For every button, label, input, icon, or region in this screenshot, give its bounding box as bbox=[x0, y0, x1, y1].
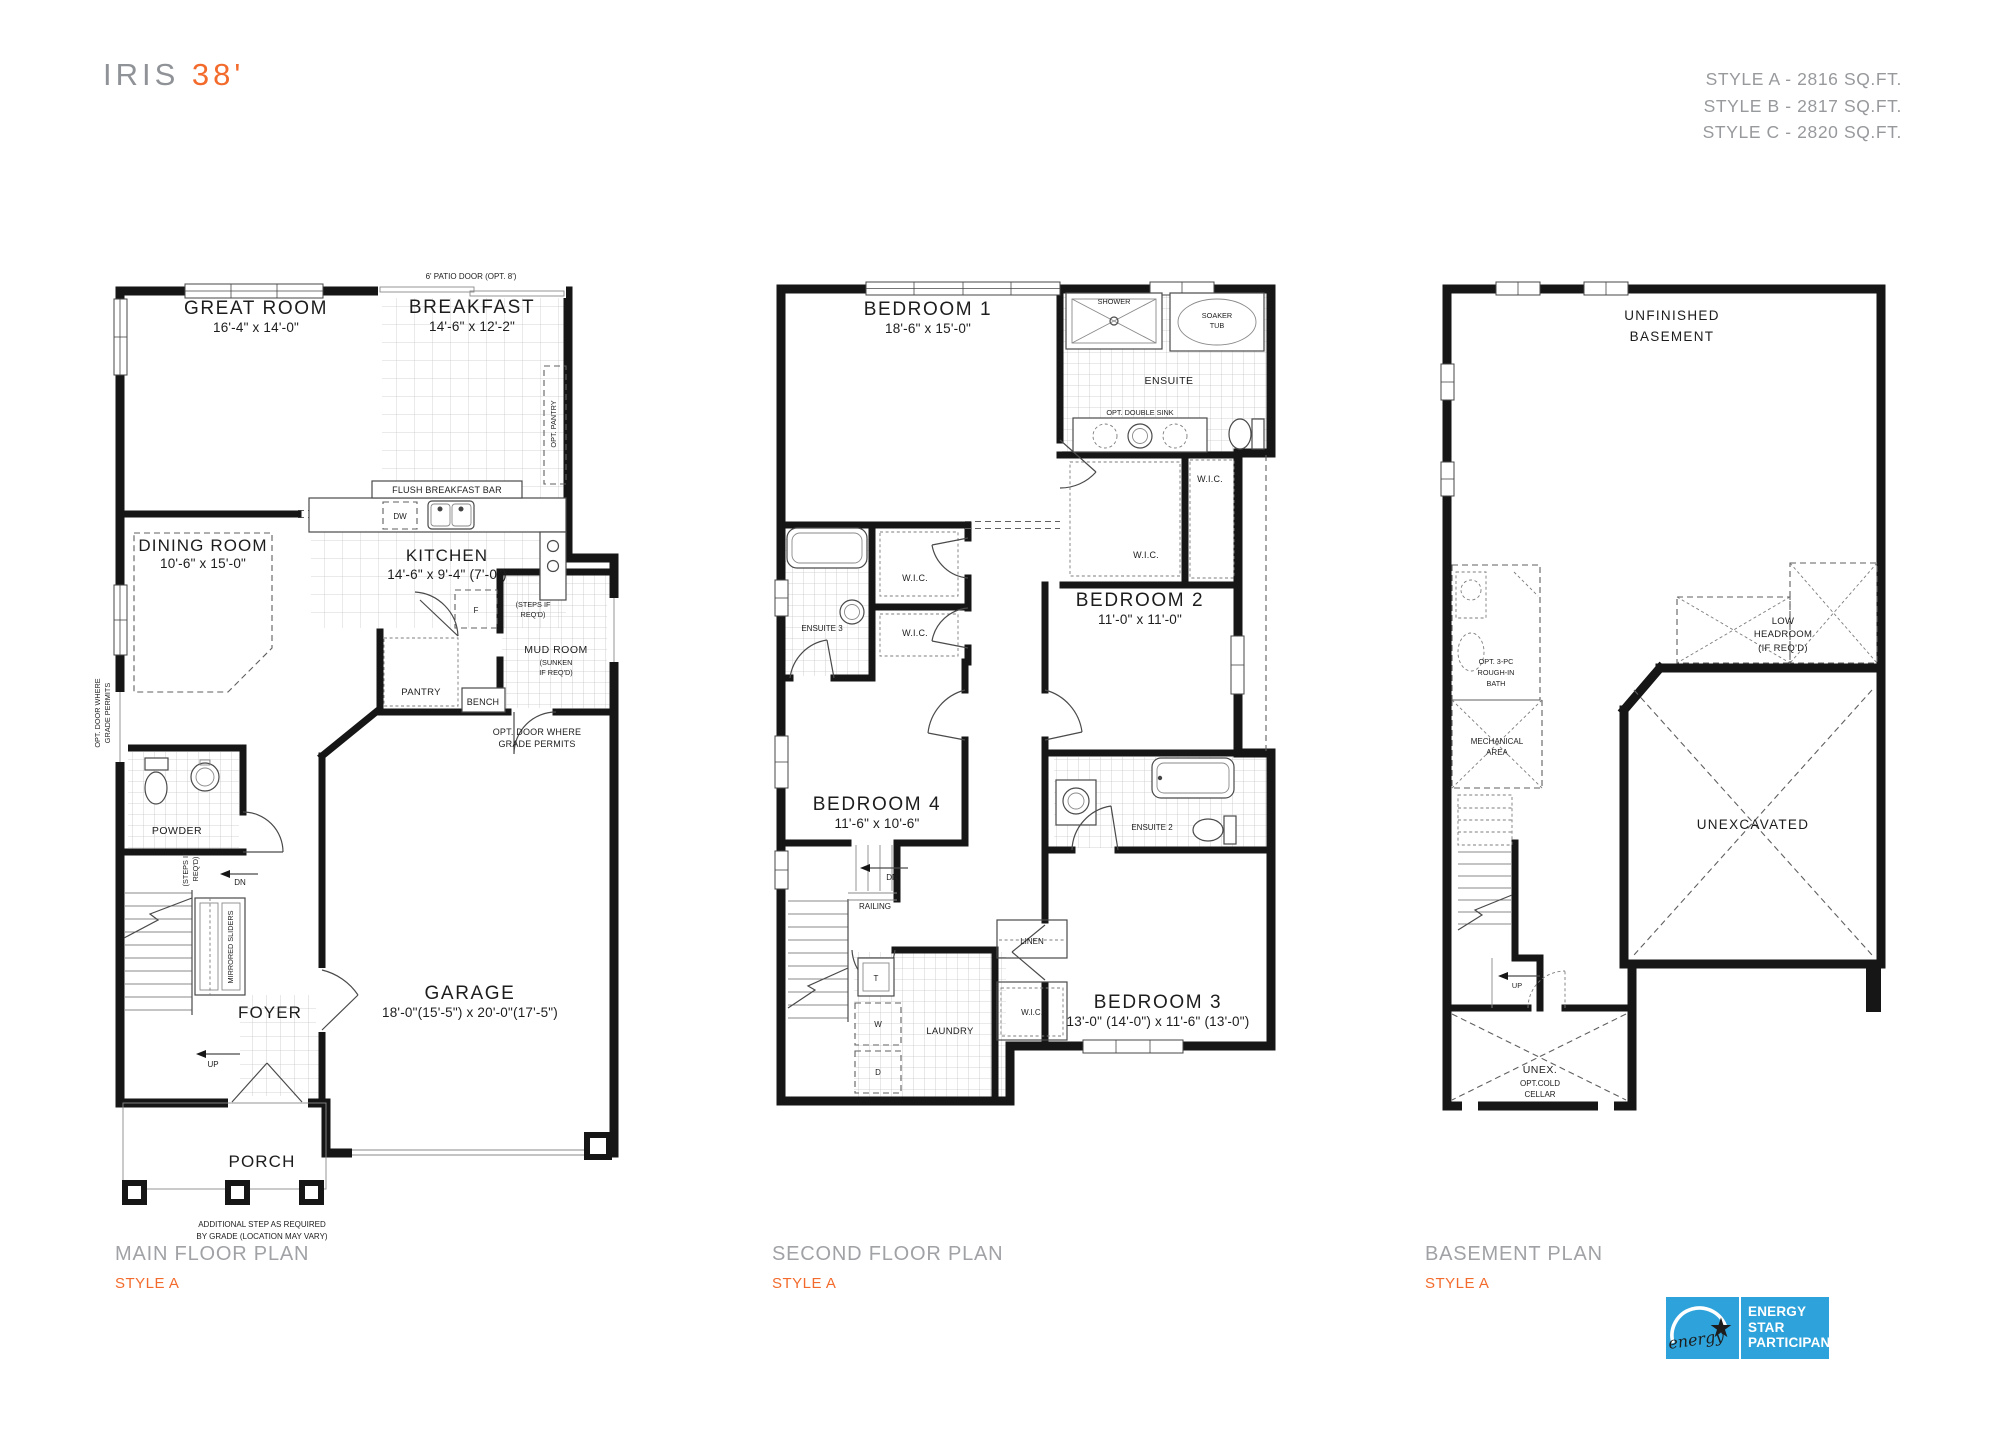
basement-interior-walls bbox=[1447, 843, 1632, 1008]
soaker-tub-label-2: TUB bbox=[1210, 321, 1225, 330]
steps-stair-note-1: (STEPS IF bbox=[181, 851, 190, 886]
mud-room-label: MUD ROOM bbox=[524, 644, 588, 656]
up-arrow bbox=[196, 1050, 240, 1058]
bedroom2-window bbox=[1231, 636, 1244, 694]
mechanical-area-label-1: MECHANICAL bbox=[1471, 737, 1524, 746]
left-window-great bbox=[114, 299, 127, 375]
opt-door-note-2: GRADE PERMITS bbox=[498, 739, 575, 749]
mud-room-sub-2: IF REQ'D) bbox=[539, 668, 572, 677]
bedroom3-window bbox=[1083, 1040, 1183, 1053]
pantry-label: PANTRY bbox=[401, 687, 441, 698]
powder-label: POWDER bbox=[152, 825, 202, 837]
dishwasher-label: DW bbox=[393, 512, 407, 521]
garage-dims: 18'-0"(15'-5") x 20'-0"(17'-5") bbox=[382, 1005, 558, 1020]
basement-window-top-2 bbox=[1584, 282, 1628, 295]
washer-label: W bbox=[874, 1020, 882, 1029]
kitchen-sink bbox=[428, 501, 474, 529]
ensuite-label: ENSUITE bbox=[1144, 375, 1193, 387]
low-headroom-label-1: LOW bbox=[1772, 616, 1795, 627]
main-floor-caption: MAIN FLOOR PLAN STYLE A bbox=[115, 1243, 309, 1292]
additional-step-note-2: BY GRADE (LOCATION MAY VARY) bbox=[196, 1232, 327, 1241]
main-floor-caption-style: STYLE A bbox=[115, 1275, 309, 1292]
basement-window-left-1 bbox=[1441, 364, 1454, 400]
bedroom4-label: BEDROOM 4 bbox=[813, 794, 941, 815]
energy-star-logo: ★ energy ENERGY STAR PARTICIPANT bbox=[1666, 1297, 1829, 1359]
porch-outline bbox=[123, 1103, 326, 1189]
ensuite2-label: ENSUITE 2 bbox=[1131, 823, 1173, 832]
unex-cellar-label-3: CELLAR bbox=[1524, 1090, 1555, 1099]
great-room-window bbox=[185, 284, 323, 298]
second-floor-caption-title: SECOND FLOOR PLAN bbox=[772, 1243, 1003, 1266]
energy-star-line2: STAR bbox=[1748, 1320, 1829, 1336]
bedroom1-window bbox=[866, 282, 1060, 295]
laundry-label: LAUNDRY bbox=[926, 1026, 974, 1037]
dining-room-label: DINING ROOM bbox=[138, 536, 267, 555]
unex-cellar-label-1: UNEX. bbox=[1523, 1064, 1558, 1076]
bedroom4-dims: 11'-6" x 10'-6" bbox=[834, 816, 919, 831]
rough-in-bath-label-2: ROUGH-IN bbox=[1478, 668, 1515, 677]
opt-door-note-1: OPT. DOOR WHERE bbox=[493, 727, 582, 737]
energy-star-script: energy bbox=[1667, 1326, 1726, 1353]
bedroom3-dims: 13'-0" (14'-0") x 11'-6" (13'-0") bbox=[1067, 1014, 1250, 1029]
dn-arrow bbox=[220, 870, 258, 878]
basement-window-left-2 bbox=[1441, 462, 1454, 496]
unfinished-basement-label-2: BASEMENT bbox=[1630, 329, 1715, 344]
porch-posts bbox=[122, 1180, 324, 1205]
basement-caption-style: STYLE A bbox=[1425, 1275, 1603, 1292]
garage-label: GARAGE bbox=[425, 983, 516, 1004]
energy-star-mark: ★ energy bbox=[1666, 1297, 1739, 1359]
foyer-closet bbox=[195, 898, 245, 995]
bedroom3-label: BEDROOM 3 bbox=[1094, 992, 1222, 1013]
basement-plan: UNFINISHED BASEMENT LOW HEADROOM (IF REQ… bbox=[1441, 282, 1881, 1111]
up-label: UP bbox=[207, 1060, 218, 1069]
fridge-label: F bbox=[474, 606, 479, 615]
kitchen-dims: 14'-6" x 9'-4" (7'-0") bbox=[387, 567, 507, 582]
wic-label-b: W.I.C. bbox=[902, 628, 928, 638]
basement-wing-wall bbox=[1866, 964, 1881, 1012]
opt-door-side-note-2: GRADE PERMITS bbox=[103, 683, 112, 744]
mud-room-sub-1: (SUNKEN bbox=[540, 658, 573, 667]
dn-label: DN bbox=[234, 878, 246, 887]
wic-label-d: W.I.C. bbox=[1133, 550, 1159, 560]
steps-stair-note-2: REQ'D) bbox=[191, 857, 200, 882]
left-opt-door-opening bbox=[112, 692, 128, 762]
wic-label-c: W.I.C. bbox=[1197, 474, 1223, 484]
stair-window bbox=[775, 851, 788, 889]
patio-door bbox=[378, 283, 566, 298]
wic-label-a: W.I.C. bbox=[902, 573, 928, 583]
steps-kitchen-label-1: (STEPS IF bbox=[516, 600, 551, 609]
mechanical-area-label-2: AREA bbox=[1486, 748, 1508, 757]
great-room-label: GREAT ROOM bbox=[184, 298, 328, 319]
opt-door-side-note-1: OPT. DOOR WHERE bbox=[93, 678, 102, 747]
main-floor-caption-title: MAIN FLOOR PLAN bbox=[115, 1243, 309, 1266]
bedroom4-window bbox=[775, 736, 788, 788]
bedroom2-label: BEDROOM 2 bbox=[1076, 590, 1204, 611]
floor-plan-drawing: 6' PATIO DOOR (OPT. 8') GREAT ROOM 16'-4… bbox=[0, 0, 2000, 1430]
bench-label: BENCH bbox=[467, 697, 500, 707]
wic-label-e: W.I.C. bbox=[1021, 1008, 1043, 1017]
main-stairs bbox=[124, 890, 192, 1015]
foyer-label: FOYER bbox=[238, 1003, 302, 1022]
main-floor-plan: 6' PATIO DOOR (OPT. 8') GREAT ROOM 16'-4… bbox=[93, 272, 621, 1241]
basement-stairs bbox=[1458, 795, 1540, 1008]
porch-label: PORCH bbox=[229, 1152, 296, 1171]
patio-door-label: 6' PATIO DOOR (OPT. 8') bbox=[426, 272, 517, 281]
rough-in-bath-label-1: OPT. 3-PC bbox=[1479, 657, 1514, 666]
soaker-tub-label-1: SOAKER bbox=[1202, 311, 1232, 320]
basement-caption: BASEMENT PLAN STYLE A bbox=[1425, 1243, 1603, 1292]
ensuite-toilet bbox=[1229, 419, 1264, 449]
flush-breakfast-bar-label: FLUSH BREAKFAST BAR bbox=[392, 485, 502, 495]
up-label-basement: UP bbox=[1512, 981, 1522, 990]
railing-label: RAILING bbox=[859, 902, 891, 911]
unexcavated-walls bbox=[1624, 668, 1877, 964]
low-headroom-label-2: HEADROOM bbox=[1754, 629, 1812, 640]
second-floor-caption: SECOND FLOOR PLAN STYLE A bbox=[772, 1243, 1003, 1292]
kitchen-label: KITCHEN bbox=[406, 546, 488, 565]
steps-kitchen-label-2: REQ'D) bbox=[521, 610, 546, 619]
dryer-label: D bbox=[875, 1068, 881, 1077]
bedroom1-dims: 18'-6" x 15'-0" bbox=[885, 321, 971, 336]
unexcavated-label: UNEXCAVATED bbox=[1697, 817, 1810, 832]
powder-door bbox=[243, 812, 283, 852]
foyer-garage-door bbox=[316, 968, 358, 1032]
rough-in-bath-label-3: BATH bbox=[1487, 679, 1506, 688]
mud-side-door-opening bbox=[607, 598, 621, 662]
breakfast-dims: 14'-6" x 12'-2" bbox=[429, 319, 515, 334]
bedroom1-label: BEDROOM 1 bbox=[864, 299, 992, 320]
low-headroom-label-3: (IF REQ'D) bbox=[1758, 643, 1808, 654]
breakfast-label: BREAKFAST bbox=[409, 297, 535, 318]
bedroom1-opening bbox=[965, 522, 1060, 529]
mirrored-sliders-label: MIRRORED SLIDERS bbox=[226, 910, 235, 983]
dining-room-dims: 10'-6" x 15'-0" bbox=[160, 556, 246, 571]
linen-label: LINEN bbox=[1020, 937, 1044, 946]
powder-toilet bbox=[145, 758, 168, 804]
second-floor-caption-style: STYLE A bbox=[772, 1275, 1003, 1292]
second-floor-plan: BEDROOM 1 18'-6" x 15'-0" SHOWER SOAKER … bbox=[775, 282, 1271, 1101]
left-window-dining bbox=[114, 585, 127, 655]
energy-star-line3: PARTICIPANT bbox=[1748, 1335, 1829, 1351]
dn-label-second: DN bbox=[886, 873, 898, 882]
ensuite3-window bbox=[775, 580, 788, 616]
opt-pantry-label: OPT. PANTRY bbox=[549, 400, 558, 447]
great-room-dims: 16'-4" x 14'-0" bbox=[213, 320, 299, 335]
basement-window-top-1 bbox=[1496, 282, 1540, 295]
shower-label: SHOWER bbox=[1098, 297, 1131, 306]
kitchen-stove bbox=[540, 532, 566, 600]
garage-door bbox=[352, 1132, 612, 1160]
opt-double-sink-label: OPT. DOUBLE SINK bbox=[1106, 408, 1173, 417]
energy-star-text: ENERGY STAR PARTICIPANT bbox=[1741, 1297, 1829, 1359]
ensuite-vanity bbox=[1073, 418, 1207, 452]
bedroom2-dims: 11'-0" x 11'-0" bbox=[1098, 612, 1182, 627]
ensuite3-label: ENSUITE 3 bbox=[801, 624, 843, 633]
unfinished-basement-label-1: UNFINISHED bbox=[1624, 308, 1720, 323]
additional-step-note-1: ADDITIONAL STEP AS REQUIRED bbox=[198, 1220, 326, 1229]
basement-caption-title: BASEMENT PLAN bbox=[1425, 1243, 1603, 1266]
tub-label: T bbox=[874, 974, 879, 983]
unex-cellar-label-2: OPT.COLD bbox=[1520, 1079, 1560, 1088]
energy-star-line1: ENERGY bbox=[1748, 1304, 1829, 1320]
